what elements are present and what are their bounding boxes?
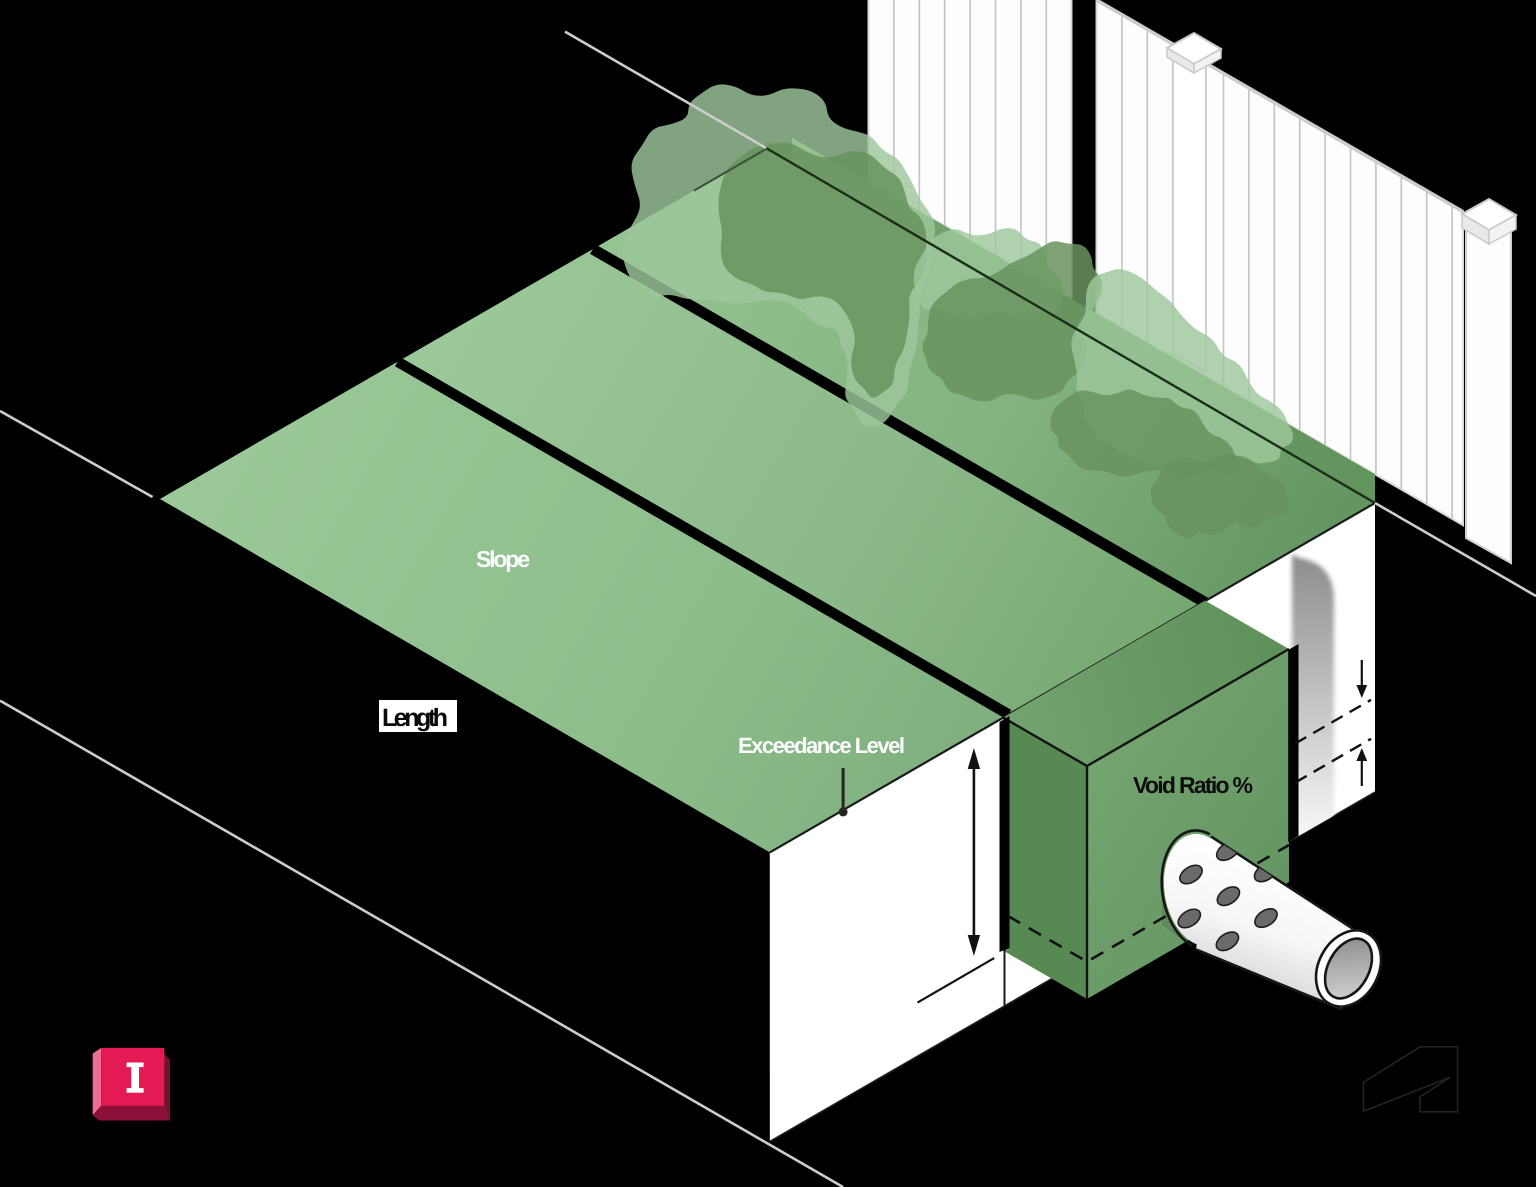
svg-text:Slope: Slope (476, 546, 530, 572)
svg-text:Length: Length (382, 704, 448, 732)
svg-text:Exceedance Level: Exceedance Level (738, 733, 905, 758)
svg-text:Void Ratio %: Void Ratio % (1133, 772, 1253, 798)
